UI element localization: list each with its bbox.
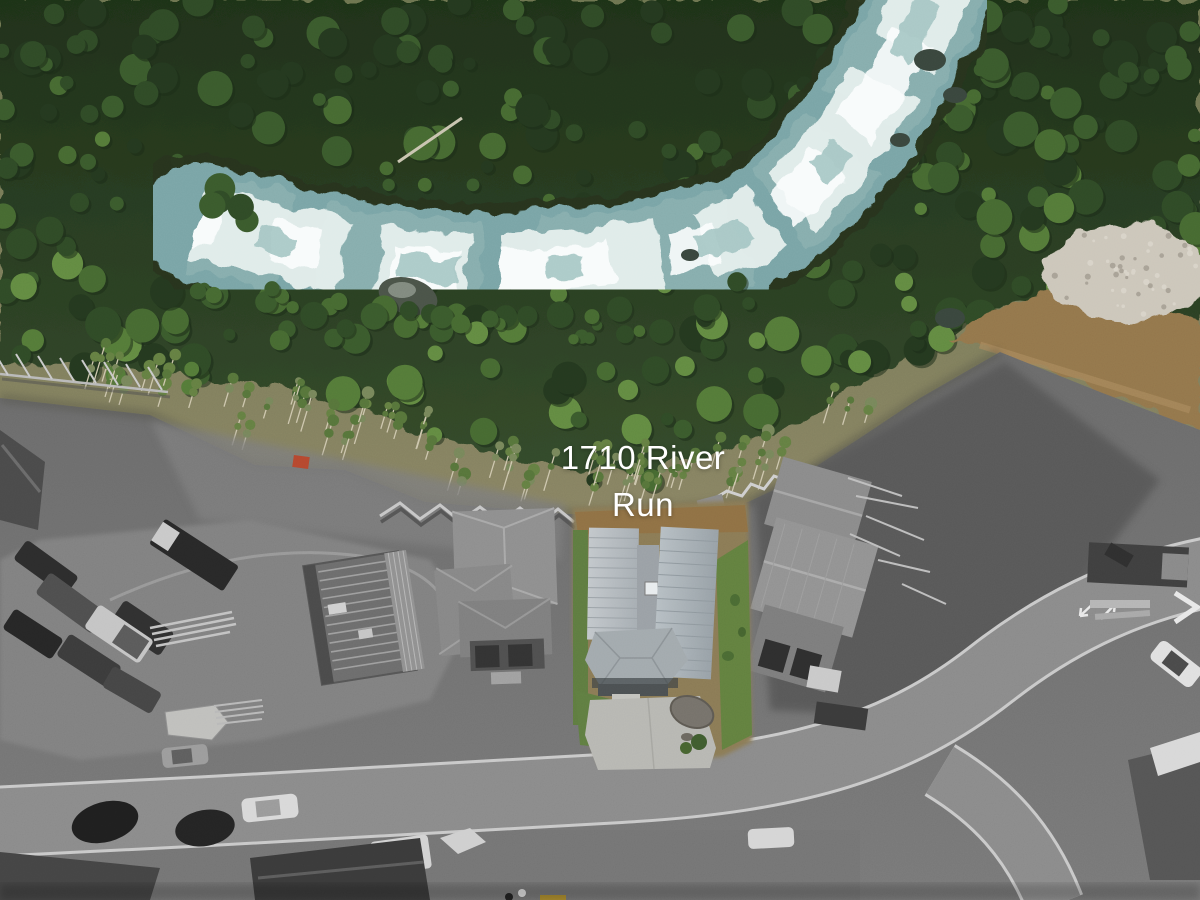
aerial-photo: 1710 River Run xyxy=(0,0,1200,900)
property-label-line1: 1710 River xyxy=(561,434,726,481)
property-label: 1710 River Run xyxy=(561,434,726,528)
bottom-vignette xyxy=(0,884,1200,900)
property-label-line2: Run xyxy=(561,481,726,528)
